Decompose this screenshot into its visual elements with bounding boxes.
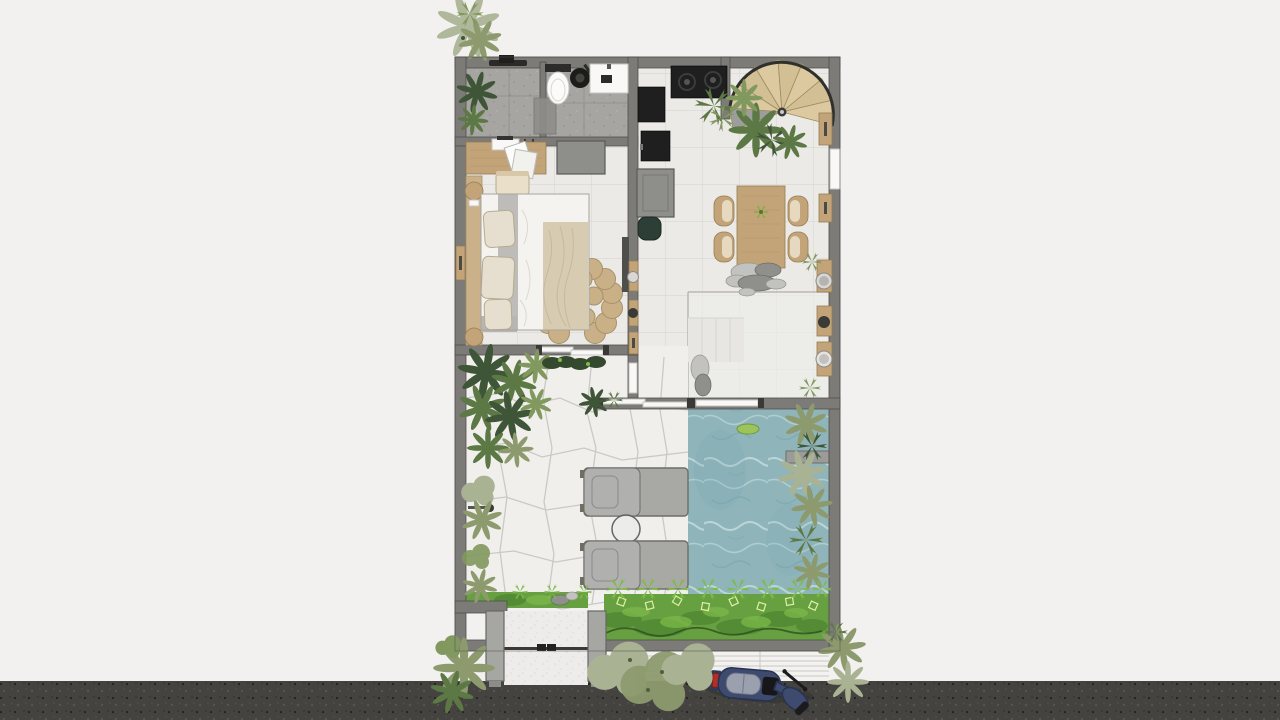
island-handle — [640, 144, 643, 150]
courtyard-window — [629, 363, 637, 393]
stool — [465, 182, 483, 200]
bath-mat — [534, 98, 556, 134]
side-table — [612, 515, 640, 543]
bedroom-sliding-door — [541, 347, 573, 352]
kitchen-island — [641, 131, 670, 161]
terrace-plank-tiles — [688, 318, 744, 362]
pool-float — [737, 424, 759, 434]
bedroom-sliding-door — [571, 350, 603, 355]
counter-unit — [638, 87, 665, 122]
vanity-counter — [590, 64, 628, 93]
partition-wall-accents — [628, 261, 639, 354]
sun-lounger — [580, 541, 688, 589]
east-window — [830, 149, 840, 189]
garden-rock — [566, 592, 578, 600]
living-sliding-door — [643, 402, 687, 407]
desk-chair — [496, 173, 529, 195]
dresser-cabinet — [557, 141, 605, 174]
toilet — [545, 64, 571, 104]
dining-table — [737, 186, 785, 268]
wardrobe-panel — [622, 237, 629, 292]
stove-cooktop — [671, 66, 727, 98]
pool-sliding-door — [696, 400, 758, 406]
bed — [481, 194, 589, 332]
pouf — [638, 217, 661, 240]
stool — [465, 328, 483, 346]
sun-lounger — [580, 468, 688, 516]
floor-plan-rendering — [0, 0, 1280, 720]
gate-handle — [547, 644, 556, 651]
shower-head — [499, 55, 514, 63]
gate-handle — [537, 644, 546, 651]
floor-plan-canvas — [0, 0, 1280, 720]
